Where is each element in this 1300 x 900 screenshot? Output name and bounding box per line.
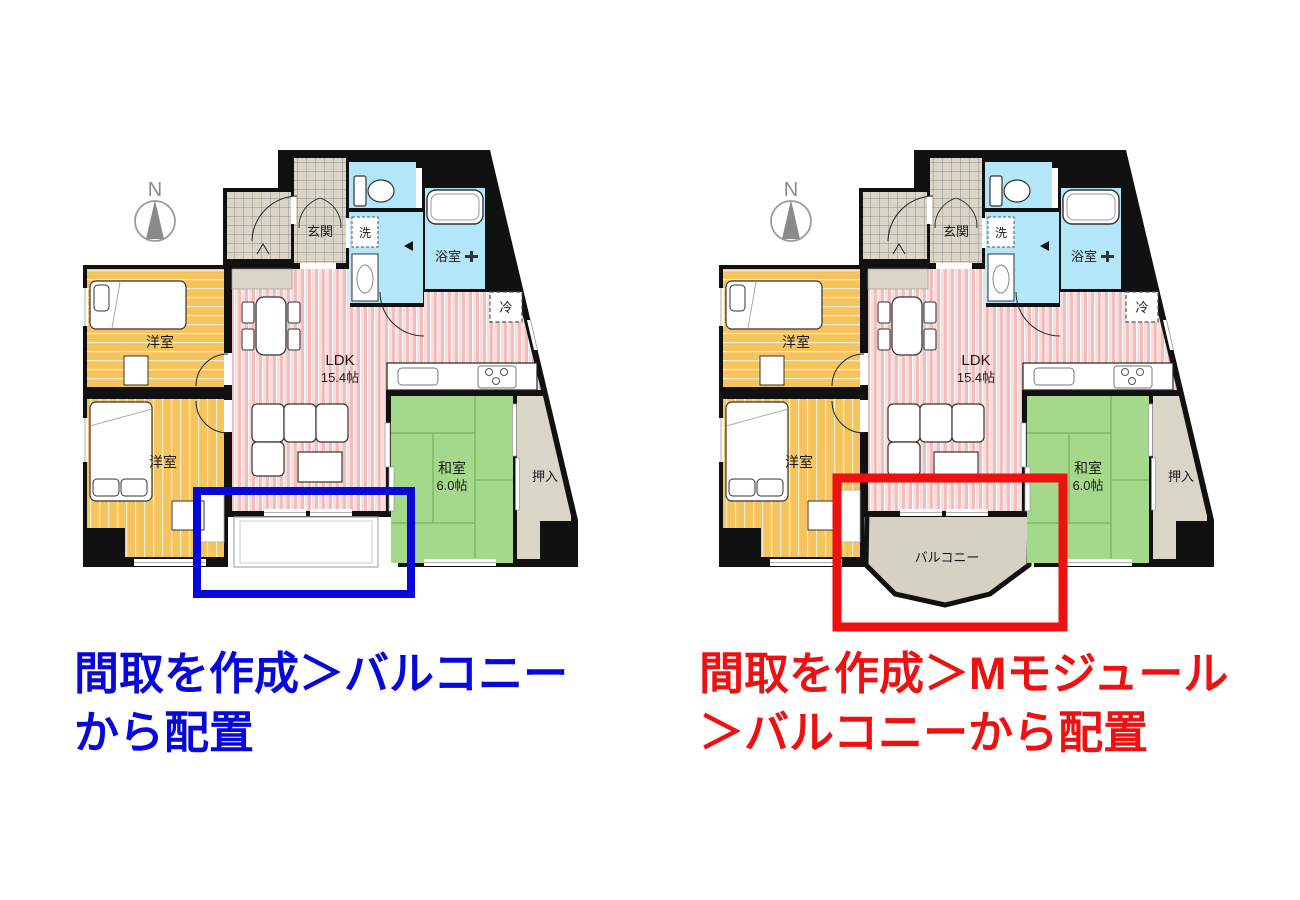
figure-canvas: N xyxy=(0,0,1300,900)
floorplan-left xyxy=(82,150,578,567)
right-caption-line2: ＞バルコニーから配置 xyxy=(699,707,1148,758)
left-caption-line1: 間取を作成＞バルコニー xyxy=(74,648,568,699)
right-caption-line1: 間取を作成＞Mモジュール xyxy=(699,648,1228,699)
label-balcony: バルコニー xyxy=(915,550,980,565)
left-caption-line2: から配置 xyxy=(74,707,254,758)
floorplan-comparison-figure: N xyxy=(0,0,1300,900)
floorplan-right: バルコニー xyxy=(718,150,1214,605)
balcony-left-removed xyxy=(234,517,378,567)
